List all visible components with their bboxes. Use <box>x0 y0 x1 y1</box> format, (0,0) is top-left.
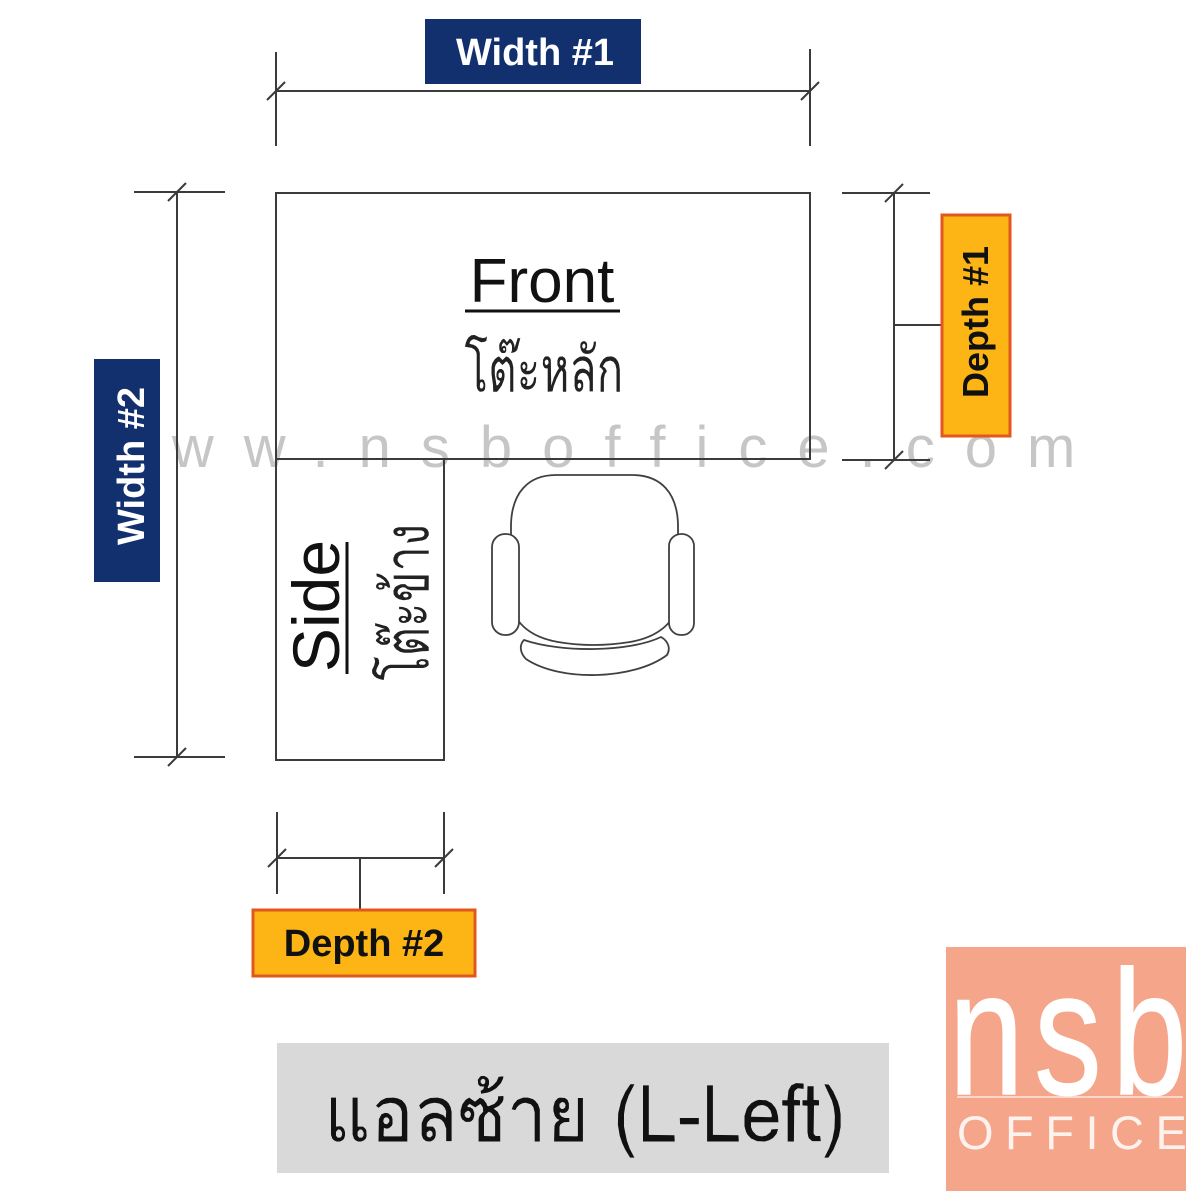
svg-text:Front: Front <box>470 247 615 316</box>
svg-text:Depth #2: Depth #2 <box>284 923 444 965</box>
svg-text:Width #2: Width #2 <box>111 387 153 545</box>
svg-text:OFFICE: OFFICE <box>957 1106 1198 1159</box>
svg-text:Width #1: Width #1 <box>456 32 614 74</box>
svg-text:Side: Side <box>279 540 353 672</box>
svg-text:Depth #1: Depth #1 <box>955 246 996 398</box>
svg-text:nsb: nsb <box>949 935 1198 1132</box>
